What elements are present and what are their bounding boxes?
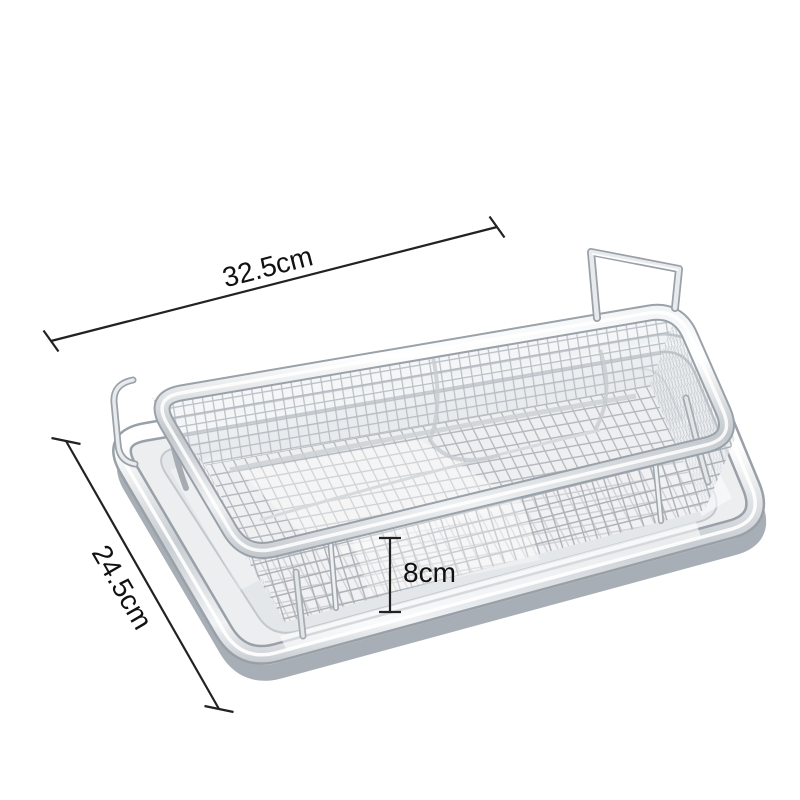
depth-dimension-label: 24.5cm <box>86 540 159 635</box>
width-dimension-tick <box>490 217 505 238</box>
crisper-tray-scene: 32.5cm 24.5cm 8cm <box>0 0 800 800</box>
width-dimension-tick <box>44 331 59 352</box>
product-photo: 32.5cm 24.5cm 8cm <box>0 0 800 800</box>
width-dimension: 32.5cm <box>44 217 505 352</box>
height-dimension-label: 8cm <box>403 557 456 588</box>
width-dimension-line <box>51 227 497 341</box>
